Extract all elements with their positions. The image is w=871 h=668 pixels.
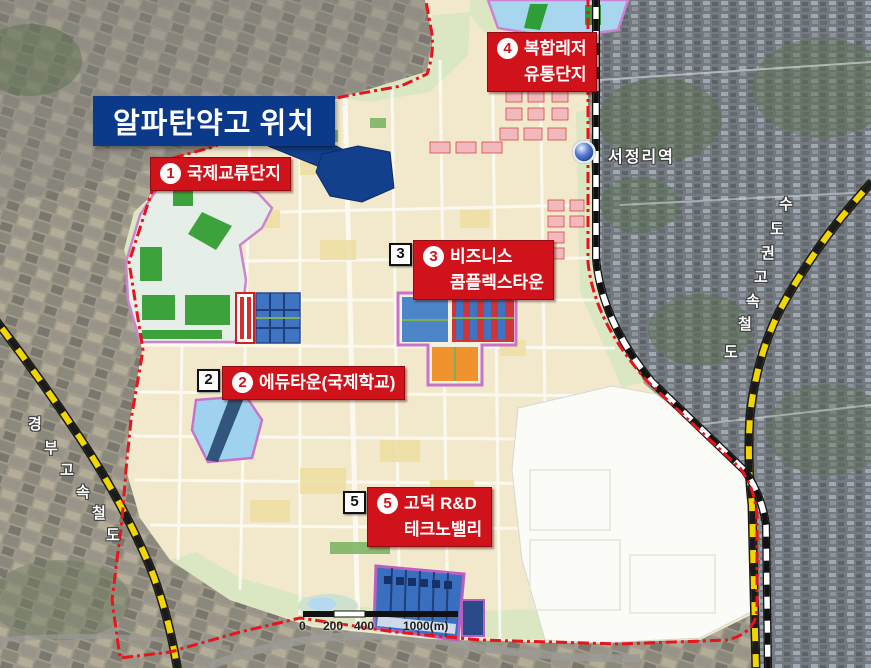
gyeongbu-hsr-label-char: 경 — [28, 413, 42, 434]
scale-tick-200: 200 — [323, 619, 343, 633]
map-index-3: 3 — [389, 243, 412, 266]
zone-5-text-line2: 테크노밸리 — [404, 517, 482, 543]
zone-3-text-line2: 콤플렉스타운 — [450, 270, 544, 296]
district-plan-map: 알파탄약고 위치 1국제교류단지 2 2에듀타운(국제학교) 3 3비즈니스 콤… — [0, 0, 871, 668]
metro-hsr-label-char: 수 — [779, 193, 793, 214]
scale-tick-400: 400 — [354, 619, 374, 633]
zone-4-text-line2: 유통단지 — [524, 62, 587, 88]
gyeongbu-hsr-label-char: 고 — [60, 459, 74, 480]
zone-label-2: 2에듀타운(국제학교) — [222, 366, 405, 400]
map-index-2: 2 — [197, 369, 220, 392]
zone-label-3: 3비즈니스 콤플렉스타운 — [413, 240, 554, 300]
gyeongbu-hsr-label-char: 부 — [44, 437, 58, 458]
station-label: 서정리역 — [608, 143, 675, 167]
zone-edu-town — [192, 396, 262, 462]
zone-label-1: 1국제교류단지 — [150, 157, 291, 191]
metro-hsr-label-char: 철 — [738, 313, 752, 334]
metro-hsr-label-char: 고 — [754, 266, 768, 287]
zone-number-5-circle: 5 — [377, 493, 398, 514]
zone-label-4: 4복합레저 유통단지 — [487, 32, 597, 92]
metro-hsr-label-char: 도 — [770, 218, 784, 239]
station-marker — [572, 140, 596, 164]
zone-4-text-line1: 복합레저 — [524, 39, 587, 58]
scale-tick-1000: 1000(m) — [403, 619, 448, 633]
zone-number-3-circle: 3 — [423, 246, 444, 267]
map-index-5: 5 — [343, 491, 366, 514]
scale-bar — [303, 611, 458, 617]
zone-number-2-circle: 2 — [232, 372, 253, 393]
gyeongbu-hsr-label-char: 철 — [92, 502, 106, 523]
metro-hsr-label-char: 속 — [746, 290, 760, 311]
zone-number-4-circle: 4 — [497, 38, 518, 59]
gyeongbu-hsr-label-char: 도 — [106, 524, 120, 545]
depot-callout: 알파탄약고 위치 — [93, 96, 335, 146]
zone-number-1-circle: 1 — [160, 163, 181, 184]
scale-tick-0: 0 — [299, 619, 306, 633]
zone-1-text: 국제교류단지 — [187, 164, 281, 183]
metro-hsr-label-char: 도 — [724, 341, 738, 362]
zone-3-text-line1: 비즈니스 — [450, 247, 513, 266]
zone-label-5: 5고덕 R&D 테크노밸리 — [367, 487, 492, 547]
gyeongbu-hsr-label-char: 속 — [76, 481, 90, 502]
zone-5-text-line1: 고덕 R&D — [404, 494, 477, 513]
zone-2-text: 에듀타운(국제학교) — [259, 373, 395, 392]
metro-hsr-label-char: 권 — [761, 242, 775, 263]
